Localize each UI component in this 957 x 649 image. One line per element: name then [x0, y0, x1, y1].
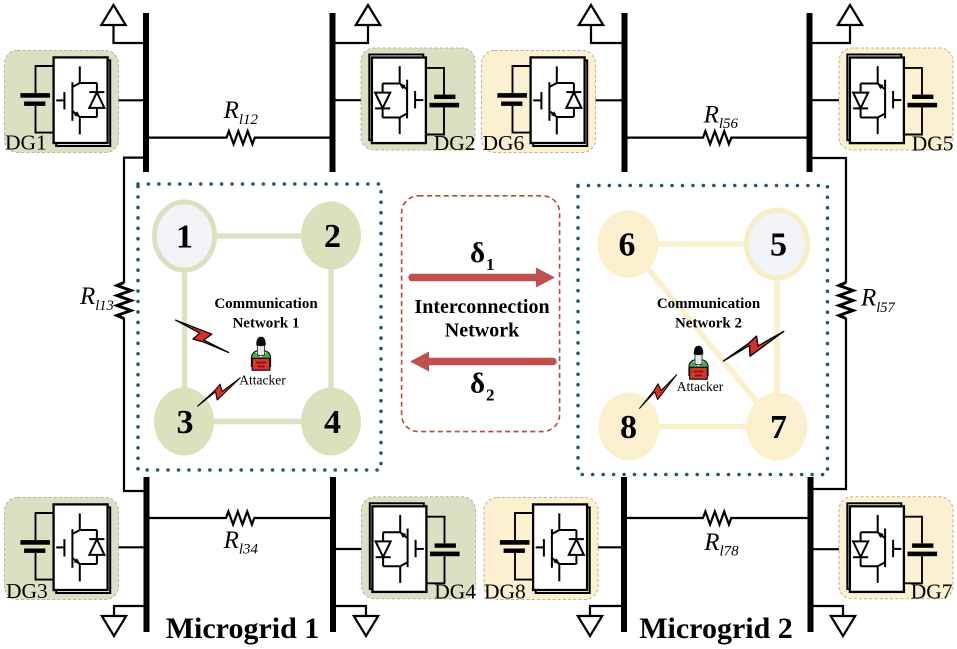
svg-text:Rl34: Rl34: [223, 527, 259, 558]
svg-text:Rl12: Rl12: [223, 97, 259, 128]
svg-text:DG6: DG6: [483, 131, 525, 155]
svg-text:Network: Network: [445, 320, 520, 342]
svg-text:DG2: DG2: [434, 131, 476, 155]
svg-text:DG4: DG4: [434, 580, 476, 604]
svg-text:7: 7: [770, 409, 787, 446]
svg-text:Interconnection: Interconnection: [414, 296, 549, 318]
svg-text:Communication: Communication: [214, 296, 318, 312]
svg-text:DG7: DG7: [911, 580, 953, 604]
svg-text:8: 8: [620, 409, 637, 446]
svg-text:Microgrid 1: Microgrid 1: [166, 612, 320, 645]
svg-text:DG5: DG5: [912, 132, 954, 156]
svg-text:Rl13: Rl13: [79, 283, 114, 314]
svg-text:δ: δ: [470, 237, 485, 269]
svg-text:1: 1: [486, 255, 495, 274]
svg-text:Microgrid 2: Microgrid 2: [639, 612, 793, 645]
svg-text:3: 3: [177, 404, 194, 441]
svg-text:2: 2: [486, 386, 495, 405]
svg-text:6: 6: [619, 227, 636, 264]
svg-text:Rl57: Rl57: [860, 285, 896, 316]
svg-text:Rl56: Rl56: [703, 101, 739, 132]
svg-text:4: 4: [324, 404, 341, 441]
svg-text:5: 5: [770, 227, 787, 264]
svg-text:DG3: DG3: [6, 579, 48, 603]
svg-text:2: 2: [324, 218, 341, 255]
svg-text:Communication: Communication: [657, 296, 761, 312]
svg-text:Rl78: Rl78: [703, 529, 739, 560]
svg-text:δ: δ: [470, 368, 485, 400]
svg-text:DG8: DG8: [484, 580, 526, 604]
svg-text:DG1: DG1: [5, 131, 47, 155]
svg-text:Network 2: Network 2: [675, 316, 742, 332]
svg-text:Network 1: Network 1: [232, 316, 299, 332]
svg-text:Attacker: Attacker: [677, 379, 724, 394]
svg-text:1: 1: [176, 219, 193, 256]
svg-text:Attacker: Attacker: [239, 373, 286, 388]
